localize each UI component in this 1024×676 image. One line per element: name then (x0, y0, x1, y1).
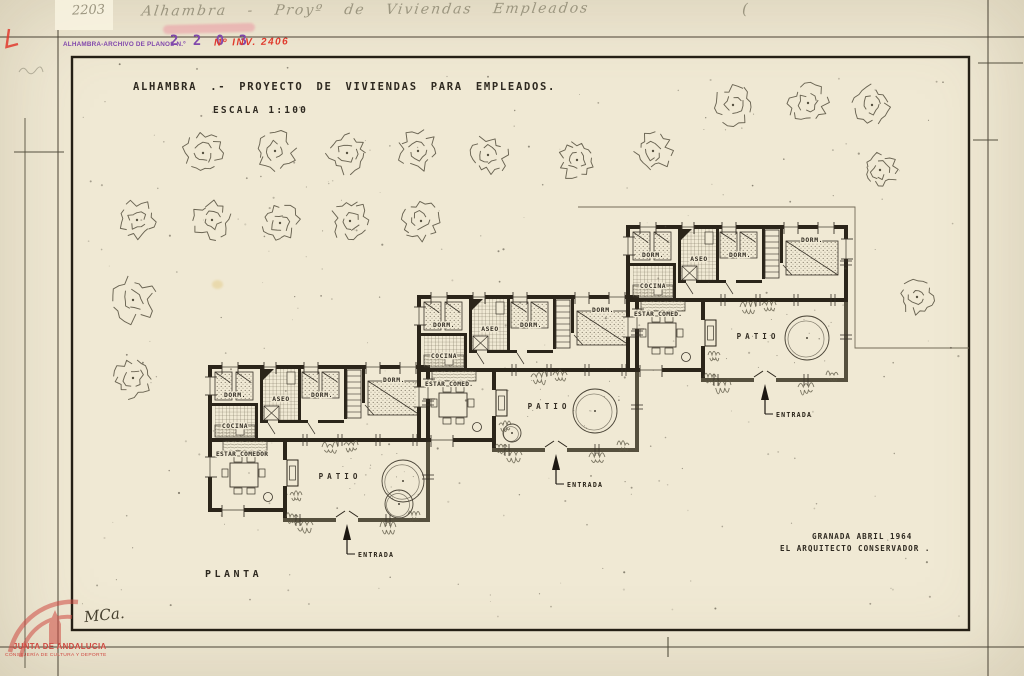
house-wall (208, 365, 430, 369)
house-unit-3: ENTRADADORM.ASEODORM.DORM.COCINAESTAR CO… (623, 222, 853, 419)
chair (431, 399, 437, 407)
patio-wall (358, 518, 430, 522)
house-wall (626, 368, 705, 372)
entrance-label: ENTRADA (358, 551, 394, 559)
room-label-cocina: COCINA (222, 423, 248, 430)
house-wall (487, 350, 517, 353)
house-wall (421, 333, 467, 336)
sideboard (223, 441, 267, 451)
door-leaf (767, 371, 776, 377)
shrub-scribble (295, 521, 313, 533)
side-table (264, 493, 273, 502)
shrub-scribble (740, 301, 756, 314)
room-label-aseo: ASEO (481, 326, 499, 333)
bath-fixture (496, 302, 504, 314)
house-wall (417, 295, 421, 372)
entrance-arrow (761, 384, 769, 400)
patio-wall (776, 378, 848, 382)
chair (259, 469, 265, 477)
door-swing (268, 423, 275, 434)
house-wall (344, 369, 347, 419)
house-wall (278, 420, 308, 423)
door-swing (517, 353, 524, 364)
fireplace (287, 460, 298, 486)
chair (456, 418, 464, 424)
house-wall (417, 438, 496, 442)
house-wall (678, 229, 681, 280)
room-label-dorm3: DORM. (383, 377, 405, 384)
patio-tree-circle (382, 460, 424, 502)
house-wall (298, 369, 301, 420)
side-table (473, 423, 482, 432)
patio-wall (426, 442, 430, 522)
wall (496, 390, 507, 416)
house-unit-1: ENTRADADORM.ASEODORM.DORM.COCINAESTAR CO… (205, 362, 435, 559)
house-wall (469, 350, 477, 353)
house-wall (208, 508, 287, 512)
tree-symbol (787, 82, 829, 119)
house-wall (208, 365, 212, 442)
chair (247, 488, 255, 494)
house-wall (553, 299, 556, 349)
house-wall (701, 302, 705, 320)
chair (443, 418, 451, 424)
chair (677, 329, 683, 337)
tree-symbol (113, 276, 156, 325)
tree-symbol (634, 132, 674, 170)
room-label-cocina: COCINA (431, 353, 457, 360)
scanned-plan-sheet: ENTRADADORM.ASEODORM.DORM.COCINAESTAR CO… (0, 0, 1024, 676)
sideboard (432, 371, 476, 381)
chair (234, 488, 242, 494)
dining-table (222, 456, 265, 494)
tree-symbol (852, 84, 891, 124)
room-label-cocina: COCINA (640, 283, 666, 290)
house-wall (260, 369, 263, 420)
house-wall (673, 263, 676, 298)
red-check-mark (7, 29, 19, 47)
bath-fixture (287, 372, 295, 384)
house-wall (318, 420, 344, 423)
tree-symbol (399, 130, 436, 172)
house-wall (626, 225, 848, 229)
room-label-estar: ESTAR COMEDOR (216, 451, 268, 458)
house-wall (762, 229, 765, 279)
chair (665, 348, 673, 354)
house-unit-2: ENTRADADORM.ASEODORM.DORM.COCINAESTAR CO… (414, 292, 644, 489)
paper-specks (82, 63, 960, 617)
house-wall (571, 299, 574, 333)
chair (640, 329, 646, 337)
house-wall (492, 372, 496, 390)
shrub-scribble (589, 453, 605, 463)
house-wall (696, 280, 726, 283)
house-wall (426, 365, 430, 442)
tree-symbol (401, 201, 440, 242)
fireplace (705, 320, 716, 346)
tree-symbol (332, 202, 369, 240)
wall (287, 460, 298, 486)
tree-symbol (120, 200, 156, 239)
tree-symbol (901, 279, 935, 315)
room-label-patio: PATIO (737, 332, 780, 341)
house-wall (635, 295, 639, 372)
house-wall (678, 280, 686, 283)
plan-drawing: ENTRADADORM.ASEODORM.DORM.COCINAESTAR CO… (0, 0, 1024, 676)
shrub-scribble (531, 372, 547, 385)
shrub-scribble (322, 442, 338, 454)
tree-symbol (715, 85, 752, 127)
bath-fixture (705, 232, 713, 244)
tree-symbol (867, 152, 899, 186)
chair (222, 469, 228, 477)
wall (705, 320, 716, 346)
dining-table (640, 316, 683, 354)
door-leaf (558, 441, 567, 447)
room-label-patio: PATIO (319, 472, 362, 481)
junta-andalucia-watermark-logo (10, 602, 78, 657)
room-label-dorm2: DORM. (729, 252, 751, 259)
door-leaf (336, 511, 345, 517)
house-wall (780, 229, 783, 263)
door-swing (477, 353, 484, 364)
shrub-scribble (798, 383, 814, 395)
room-label-dorm2: DORM. (311, 392, 333, 399)
room-label-dorm3: DORM. (801, 237, 823, 244)
patio-wall (635, 372, 639, 452)
door-leaf (349, 511, 358, 517)
tree-symbol (470, 136, 508, 174)
tree-symbol (258, 131, 297, 172)
shrub-scribble (344, 441, 358, 453)
chair (468, 399, 474, 407)
door-leaf (754, 371, 763, 377)
door-swing (308, 423, 315, 434)
shower (264, 406, 279, 420)
entrance-label: ENTRADA (776, 411, 812, 419)
house-wall (844, 225, 848, 302)
shower (473, 336, 488, 350)
door-swing (726, 283, 733, 294)
pencil-scribble (19, 67, 43, 74)
house-wall (212, 403, 258, 406)
patio-tree-circle (573, 389, 617, 433)
house-units-layer: ENTRADADORM.ASEODORM.DORM.COCINAESTAR CO… (205, 222, 853, 559)
shower (682, 266, 697, 280)
door-swing (686, 283, 693, 294)
house-wall (469, 299, 472, 350)
room-label-aseo: ASEO (690, 256, 708, 263)
tree-symbol (325, 133, 365, 175)
house-wall (736, 280, 762, 283)
house-wall (527, 350, 553, 353)
entrance-label: ENTRADA (567, 481, 603, 489)
shrub-scribble (380, 521, 396, 534)
tree-symbol (559, 142, 593, 179)
patio-wall (844, 302, 848, 382)
house-wall (716, 229, 719, 280)
house-wall (417, 295, 639, 299)
shrub-scribble (290, 491, 302, 501)
dining-table (431, 386, 474, 424)
room-label-patio: PATIO (528, 402, 571, 411)
room-label-aseo: ASEO (272, 396, 290, 403)
house-wall (255, 403, 258, 438)
house-wall (260, 420, 268, 423)
house-wall (283, 442, 287, 460)
door-leaf (545, 441, 554, 447)
tree-symbol (114, 360, 152, 400)
tree-symbol (183, 133, 224, 171)
fireplace (496, 390, 507, 416)
patio-tree-circle (385, 490, 413, 518)
room-label-dorm1: DORM. (224, 392, 246, 399)
room-label-estar: ESTAR COMED. (425, 381, 473, 388)
house-wall (464, 333, 467, 368)
chair (652, 348, 660, 354)
patio-tree-circle (785, 316, 829, 360)
entrance-arrow (552, 454, 560, 470)
tree-symbol (262, 205, 300, 240)
tree-symbol (193, 200, 231, 241)
house-wall (362, 369, 365, 403)
room-label-estar: ESTAR COMED. (634, 311, 682, 318)
sheet-rules (0, 0, 1024, 676)
house-wall (630, 263, 676, 266)
side-table (682, 353, 691, 362)
sideboard (641, 301, 685, 311)
house-wall (507, 299, 510, 350)
room-label-dorm2: DORM. (520, 322, 542, 329)
room-label-dorm3: DORM. (592, 307, 614, 314)
entrance-arrow (343, 524, 351, 540)
shrub-scribble (762, 300, 776, 311)
room-label-dorm1: DORM. (433, 322, 455, 329)
room-label-dorm1: DORM. (642, 252, 664, 259)
patio-tree-circle (503, 424, 521, 442)
patio-wall (567, 448, 639, 452)
